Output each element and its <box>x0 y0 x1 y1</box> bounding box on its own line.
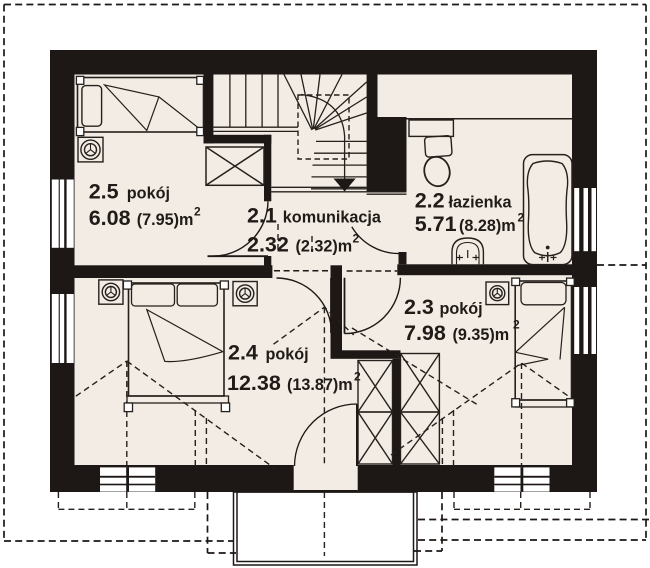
svg-text:2.1: 2.1 <box>247 203 277 227</box>
svg-text:2.2: 2.2 <box>415 189 445 213</box>
svg-text:2: 2 <box>194 205 201 219</box>
svg-text:2.3: 2.3 <box>404 295 434 319</box>
svg-text:(2.32)m: (2.32)m <box>296 238 353 256</box>
svg-text:2.5: 2.5 <box>89 179 119 203</box>
svg-text:pokój: pokój <box>440 300 483 318</box>
svg-text:2: 2 <box>354 370 361 384</box>
svg-text:5.71: 5.71 <box>415 212 457 236</box>
svg-text:komunikacja: komunikacja <box>283 208 382 226</box>
svg-text:(8.28)m: (8.28)m <box>459 217 516 235</box>
svg-text:7.98: 7.98 <box>404 321 446 345</box>
svg-text:2: 2 <box>518 211 525 225</box>
svg-text:pokój: pokój <box>266 346 309 364</box>
svg-text:(13.87)m: (13.87)m <box>287 376 353 394</box>
svg-text:(7.95)m: (7.95)m <box>137 211 194 229</box>
svg-text:6.08: 6.08 <box>89 206 131 230</box>
svg-text:pokój: pokój <box>127 184 170 202</box>
svg-text:(9.35)m: (9.35)m <box>453 326 510 344</box>
svg-text:2: 2 <box>353 232 360 246</box>
svg-text:2.32: 2.32 <box>247 233 289 257</box>
svg-text:12.38: 12.38 <box>227 371 281 395</box>
svg-text:2: 2 <box>513 318 520 332</box>
svg-text:2.4: 2.4 <box>228 341 258 365</box>
svg-text:łazienka: łazienka <box>449 194 513 212</box>
